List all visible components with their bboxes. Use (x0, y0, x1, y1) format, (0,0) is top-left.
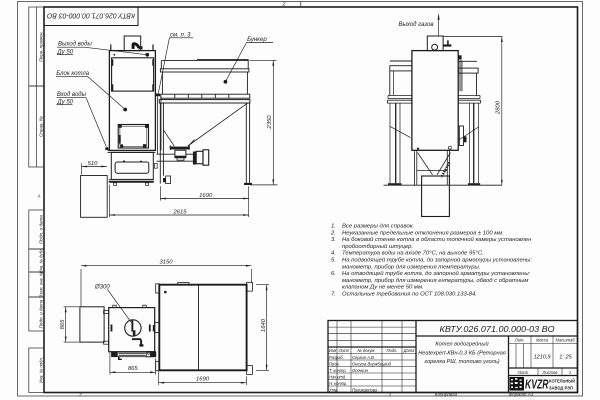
svg-text:Утв.: Утв. (329, 387, 338, 392)
svg-text:Выход газов: Выход газов (399, 22, 434, 28)
svg-text:Ду 50: Ду 50 (56, 49, 73, 55)
svg-text:манометр, прибор для измерения: манометр, прибор для измерения енператур… (342, 278, 528, 284)
svg-text:3150: 3150 (159, 260, 173, 266)
svg-text:см. п. 3: см. п. 3 (170, 32, 191, 38)
svg-text:Вход воды: Вход воды (57, 92, 87, 98)
svg-text:№ докум.: № докум. (357, 348, 375, 353)
svg-text:Бункер: Бункер (247, 37, 267, 43)
svg-text:7.: 7. (331, 292, 336, 298)
svg-text:2800: 2800 (495, 100, 501, 115)
svg-text:4.: 4. (331, 251, 336, 257)
svg-text:Котел водогрейный: Котел водогрейный (435, 341, 488, 348)
svg-text:Взам. инв. №: Взам. инв. № (38, 271, 43, 297)
svg-text:1210,9: 1210,9 (533, 355, 550, 361)
svg-text:Неуказанные предельные отклоне: Неуказанные предельные отклонения размер… (342, 230, 504, 236)
svg-text:Пров.: Пров. (329, 361, 340, 366)
svg-text:Изм: Изм (329, 348, 337, 353)
svg-text:Ду 50: Ду 50 (56, 99, 73, 105)
svg-text:865: 865 (60, 319, 66, 330)
svg-text:Н. контр.: Н. контр. (329, 381, 347, 386)
svg-text:На отводящей трубе котла, до з: На отводящей трубе котла, до запорной ар… (342, 270, 531, 277)
svg-text:манометр, прибор для измерения: манометр, прибор для измерения температу… (342, 264, 480, 270)
svg-text:Листов: Листов (542, 370, 559, 375)
svg-text:1690: 1690 (199, 193, 213, 199)
svg-text:Сергин А.В.: Сергин А.В. (352, 355, 375, 360)
svg-text:1: 25: 1: 25 (559, 355, 572, 361)
svg-text:Инв. № дубл.: Инв. № дубл. (38, 248, 43, 274)
svg-text:Справ. №: Справ. № (38, 116, 43, 137)
svg-text:1.: 1. (331, 224, 336, 230)
svg-text:865: 865 (128, 366, 139, 372)
svg-text:5.: 5. (331, 258, 336, 264)
svg-text:6.: 6. (331, 271, 336, 277)
svg-text:2615: 2615 (172, 209, 187, 215)
svg-text:Масштаб: Масштаб (555, 338, 575, 343)
svg-text:Лист: Лист (517, 370, 529, 375)
svg-text:2: 2 (282, 2, 286, 8)
svg-text:На боковой стенке котла в обла: На боковой стенке котла в области топочн… (342, 236, 532, 243)
svg-text:Остальные требования по ОСТ 10: Остальные требования по ОСТ 108.030.133-… (342, 292, 477, 298)
svg-text:2350: 2350 (267, 115, 273, 130)
svg-text:Т. контр.: Т. контр. (329, 368, 347, 373)
svg-text:Онегов-Вержбицкий: Онегов-Вержбицкий (352, 361, 392, 366)
svg-text:КВТУ.026.071.00.000-03 ВО: КВТУ.026.071.00.000-03 ВО (47, 12, 135, 21)
svg-text:клапаном Ду не менее 50 мм.: клапаном Ду не менее 50 мм. (342, 285, 424, 291)
svg-text:КОТЕЛЬНЫЙ: КОТЕЛЬНЫЙ (549, 376, 575, 383)
svg-text:КВТУ.026.071.00.000-03 ВО: КВТУ.026.071.00.000-03 ВО (440, 324, 555, 334)
svg-text:Перв. примен.: Перв. примен. (38, 31, 43, 62)
svg-text:А: А (36, 194, 40, 199)
svg-text:Подп. и дата: Подп. и дата (38, 299, 43, 328)
svg-text:ЗАВОД РЭП: ЗАВОД РЭП (549, 386, 573, 391)
svg-text:Подп. и дата: Подп. и дата (38, 215, 43, 244)
svg-text:510: 510 (88, 161, 99, 167)
svg-text:2: 2 (78, 392, 82, 397)
svg-text:Выход воды: Выход воды (58, 42, 92, 48)
svg-text:Блок котла: Блок котла (56, 71, 90, 77)
svg-text:Heatexpert-КВн-0,3 КБ (Реторна: Heatexpert-КВн-0,3 КБ (Реторная (418, 350, 506, 356)
svg-text:Нач.отд.: Нач.отд. (329, 374, 346, 379)
svg-text:На подводящей трубе котла, до: На подводящей трубе котла, до запорной а… (342, 257, 532, 264)
svg-text:Поликарпова: Поликарпова (352, 387, 378, 392)
svg-text:Все размеры для справок.: Все размеры для справок. (342, 224, 414, 230)
svg-text:1690: 1690 (196, 377, 210, 383)
svg-text:Лист: Лист (338, 348, 350, 353)
svg-text:Лит.: Лит. (514, 338, 525, 343)
svg-text:Инв. № подл.: Инв. № подл. (38, 357, 43, 383)
svg-text:Ø300: Ø300 (94, 284, 110, 290)
svg-text:3.: 3. (331, 237, 336, 243)
svg-text:Температура воды на входе 70°С: Температура воды на входе 70°С, на выход… (342, 251, 484, 257)
svg-text:Разраб.: Разраб. (329, 355, 344, 360)
svg-text:Осечкин: Осечкин (352, 368, 369, 373)
svg-text:пробоотборный штуцер.: пробоотборный штуцер. (342, 243, 413, 250)
svg-text:2.: 2. (330, 230, 336, 236)
svg-text:Дата: Дата (403, 348, 416, 353)
svg-text:KVZR: KVZR (525, 378, 549, 392)
svg-text:1: 1 (569, 370, 571, 375)
svg-text:Подп.: Подп. (387, 348, 398, 353)
svg-text:горелка РШ, топливо уголь): горелка РШ, топливо уголь) (424, 359, 499, 365)
svg-text:1640: 1640 (261, 318, 267, 332)
svg-text:Масса: Масса (536, 338, 549, 343)
